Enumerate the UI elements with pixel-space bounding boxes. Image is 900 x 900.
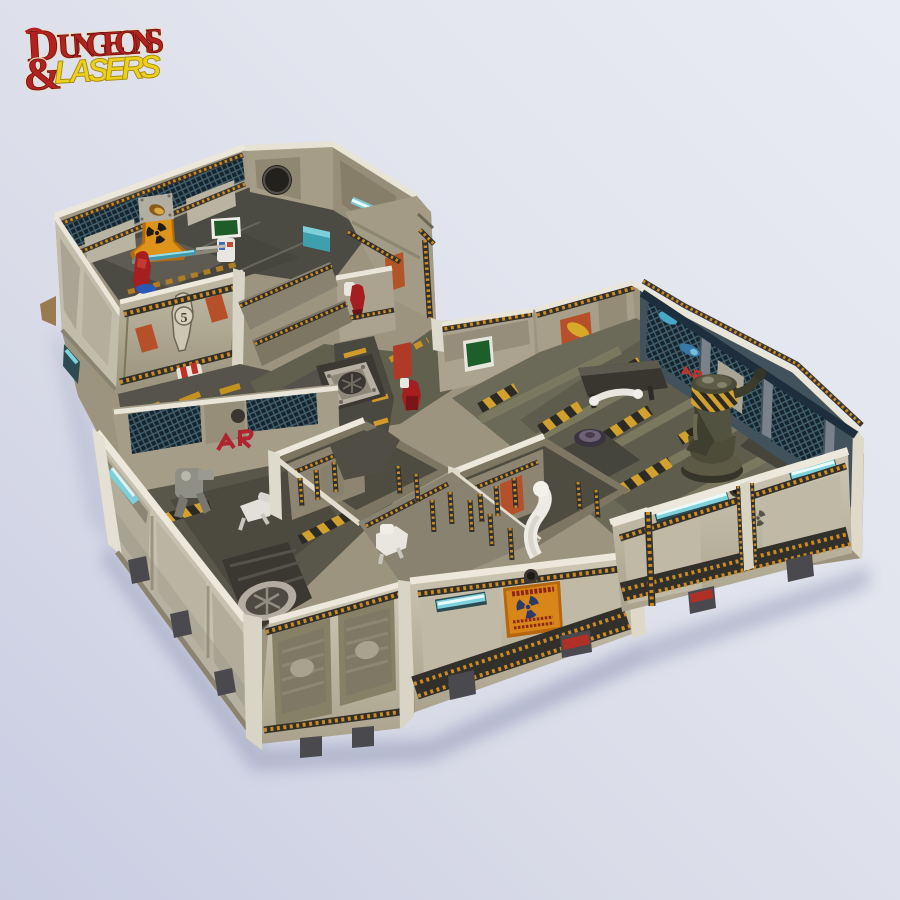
svg-text:5: 5 (181, 311, 188, 326)
svg-text:LASERS: LASERS (53, 48, 163, 91)
